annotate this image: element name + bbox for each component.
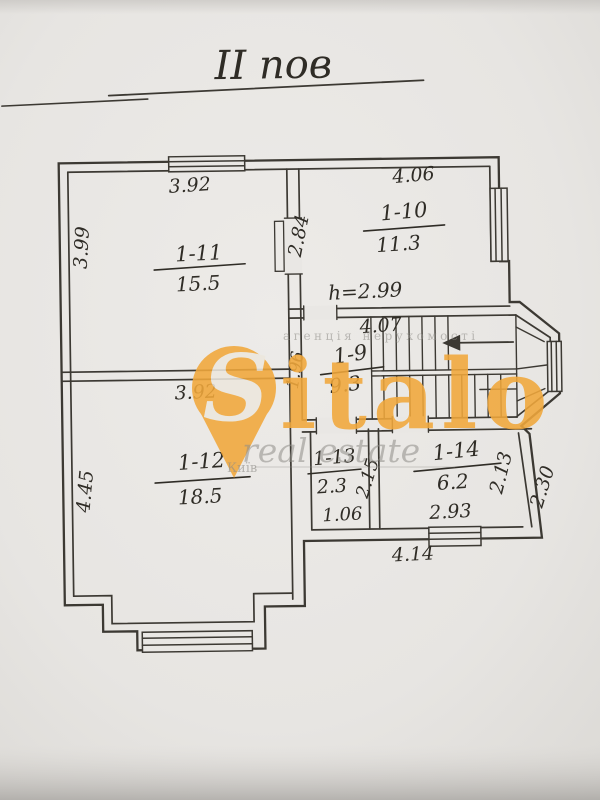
room-area: 18.5 <box>177 483 223 509</box>
watermark-city: Київ <box>227 461 257 476</box>
dim-ceiling-height: h=2.99 <box>328 277 404 305</box>
room-area: 6.2 <box>436 469 469 495</box>
photo-bottom-shadow <box>0 745 600 800</box>
dim-1-14-width: 2.93 <box>428 500 472 524</box>
window-bottom-1-14 <box>429 526 481 546</box>
room-area: 11.3 <box>375 230 421 257</box>
window-right-1-10 <box>490 188 508 261</box>
dim-1-12-height: 4.45 <box>72 469 98 514</box>
floorplan-photo: II пов <box>0 0 600 800</box>
room-area: 2.3 <box>315 475 348 499</box>
room-id: 1-10 <box>379 198 428 226</box>
room-id: 1-12 <box>177 448 226 475</box>
window-bay-1-12 <box>142 631 252 653</box>
dim-1-13-width: 1.06 <box>322 503 363 526</box>
room-id: 1-11 <box>175 240 223 266</box>
dim-1-10-width: 4.06 <box>390 163 435 189</box>
dim-1-11-height: 3.99 <box>70 226 94 269</box>
room-area: 15.5 <box>175 270 221 296</box>
dim-1-11-width: 3.92 <box>168 173 212 198</box>
watermark-pin-letter: S <box>203 334 269 442</box>
floorplan-svg: II пов <box>0 0 600 800</box>
watermark-tagline: real estate <box>242 431 420 470</box>
photo-top-shadow <box>0 0 600 14</box>
page-title: II пов <box>213 42 332 90</box>
dim-bottom-width: 4.14 <box>390 542 434 566</box>
window-top-1-11 <box>169 156 245 172</box>
